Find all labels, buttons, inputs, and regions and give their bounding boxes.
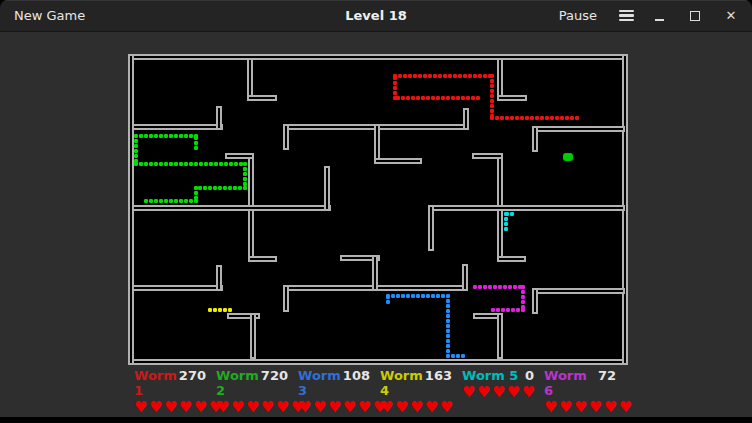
worm-1-segment [393,86,397,90]
maze-wall [497,256,526,262]
worm-1-segment [545,116,549,120]
worm-3-segment [401,294,405,298]
player-score: 720 [261,368,288,398]
worm-2-segment [214,162,218,166]
worm-3-segment [446,329,450,333]
player-score: 163 [425,368,452,398]
worm-3-segment [446,309,450,313]
worm-2-segment [144,199,148,203]
worm-1-segment [525,116,529,120]
player-name: Worm 3 [298,368,343,398]
maze-wall [463,108,469,130]
worm-2-segment [154,134,158,138]
maze-wall [372,255,378,291]
maze-wall [324,166,330,211]
worm-2-segment [229,162,233,166]
maze-wall [250,313,256,359]
worm-6-segment [498,285,502,289]
worm-3-segment [451,354,455,358]
maze-wall [428,205,434,251]
worm-2-segment [238,186,242,190]
worm-2-segment [179,199,183,203]
worm-1-segment [461,96,465,100]
worm-1-segment [453,74,457,78]
worm-2-segment [209,162,213,166]
worm-5-segment [504,212,508,216]
maze-wall [374,158,422,164]
minimize-button[interactable] [648,5,670,27]
worm-2-segment [219,162,223,166]
worm-2-segment [194,146,198,150]
worm-3-segment [446,324,450,328]
worm-1-segment [466,96,470,100]
worm-2-segment [194,134,198,138]
maze-wall [132,124,223,130]
worm-2-segment [134,149,138,153]
worm-5-segment [504,227,508,231]
worm-1-segment [413,74,417,78]
worm-1-segment [535,116,539,120]
worm-2-segment [234,162,238,166]
worm-1-segment [468,74,472,78]
worm-2-segment [134,162,138,166]
worm-1-segment [540,116,544,120]
worm-1-segment [431,96,435,100]
maximize-button[interactable] [684,5,706,27]
worm-1-segment [401,96,405,100]
worm-6-segment [521,308,525,312]
worm-1-segment [490,116,494,120]
maze-wall [428,205,625,211]
worm-3-segment [446,299,450,303]
worm-1-segment [398,74,402,78]
worm-1-segment [393,91,397,95]
worm-6-segment [511,308,515,312]
worm-2-segment [194,191,198,195]
worm-6-segment [521,290,525,294]
worm-1-segment [490,79,494,83]
worm-1-segment [448,74,452,78]
worm-2-segment [194,141,198,145]
worm-1-segment [438,74,442,78]
worm-1-segment [490,84,494,88]
worm-6-segment [501,308,505,312]
worm-1-segment [530,116,534,120]
worm-1-segment [403,74,407,78]
worm-1-segment [418,74,422,78]
worm-1-segment [393,74,397,78]
worm-1-segment [428,74,432,78]
worm-6-segment [473,285,477,289]
maze-wall [216,106,222,130]
worm-1-segment [490,109,494,113]
player-score: 270 [179,368,206,398]
worm-1-segment [406,96,410,100]
worm-3-segment [386,300,390,304]
worm-2-segment [233,186,237,190]
worm-3-segment [386,294,390,298]
worm-1-segment [560,116,564,120]
worm-2-segment [198,186,202,190]
worm-1-segment [433,74,437,78]
player-lives-hearts: ♥♥♥♥♥♥ [216,399,298,416]
worm-4-segment [213,308,217,312]
worm-2-segment [134,144,138,148]
maze-wall [472,153,503,159]
worm-3-segment [426,294,430,298]
worm-2-segment [194,162,198,166]
worm-5-segment [504,217,508,221]
worm-3-segment [416,294,420,298]
player-lives-hearts: ♥♥♥♥♥♥ [298,399,380,416]
menu-icon[interactable] [619,10,634,21]
worm-2-segment [154,199,158,203]
player-score-panel: Worm 3108♥♥♥♥♥♥ [298,368,380,416]
worm-2-segment [174,199,178,203]
board-border-wall [128,359,628,365]
worm-3-segment [446,319,450,323]
player-score-panel: Worm 672♥♥♥♥♥♥ [544,368,626,416]
worm-3-segment [441,294,445,298]
worm-2-segment [159,162,163,166]
worm-1-segment [471,96,475,100]
worm-1-segment [411,96,415,100]
worm-3-segment [446,349,450,353]
player-score: 72 [598,368,616,398]
window-content: Worm 1270♥♥♥♥♥♥Worm 2720♥♥♥♥♥♥Worm 3108♥… [0,32,752,417]
player-score-panel: Worm 2720♥♥♥♥♥♥ [216,368,298,416]
worm-2-segment [223,186,227,190]
worm-2-segment [134,134,138,138]
worm-3-segment [446,354,450,358]
worm-3-segment [391,294,395,298]
worm-5-segment [504,222,508,226]
worm-2-segment [149,199,153,203]
worm-3-segment [436,294,440,298]
worm-6-segment [491,308,495,312]
worm-1-segment [505,116,509,120]
worm-1-segment [520,116,524,120]
worm-1-segment [473,74,477,78]
worm-2-segment [243,177,247,181]
worm-2-segment [139,134,143,138]
worm-2-segment [164,162,168,166]
worm-2-segment [174,134,178,138]
worm-6-segment [506,308,510,312]
player-lives-hearts: ♥♥♥♥♥ [462,384,544,401]
worm-6-segment [503,285,507,289]
worm-6-segment [521,295,525,299]
worm-4-segment [218,308,222,312]
worm-2-segment [179,162,183,166]
worm-2-segment [189,162,193,166]
player-score: 108 [343,368,370,398]
worm-2-segment [169,134,173,138]
worm-1-segment [500,116,504,120]
maze-wall [532,126,625,132]
worm-6-segment [508,285,512,289]
maze-wall [248,256,277,262]
worm-1-segment [441,96,445,100]
worm-3-segment [446,294,450,298]
worm-1-segment [565,116,569,120]
maze-wall [532,288,625,294]
player-name: Worm 1 [134,368,179,398]
player-name: Worm 4 [380,368,425,398]
player-name: Worm 2 [216,368,261,398]
worm-3-segment [446,339,450,343]
worm-1-segment [490,99,494,103]
worm-6-segment [521,300,525,304]
app-window: New Game Level 18 Pause ✕ Worm 1270♥♥♥♥♥… [0,0,752,417]
worm-1-segment [555,116,559,120]
worm-6-segment [496,308,500,312]
worm-2-segment [169,199,173,203]
worm-3-segment [406,294,410,298]
player-name: Worm 6 [544,368,598,398]
worm-3-segment [446,334,450,338]
worm-1-segment [416,96,420,100]
worm-1-segment [550,116,554,120]
worm-2-segment [243,186,247,190]
worm-5-segment [510,212,514,216]
worm-2-segment [159,134,163,138]
worm-1-segment [426,96,430,100]
worm-1-segment [478,74,482,78]
worm-2-segment [243,167,247,171]
worm-2-segment [144,162,148,166]
worm-1-segment [570,116,574,120]
maze-wall [497,313,503,359]
player-score-panel: Worm 50♥♥♥♥♥ [462,368,544,416]
worm-1-segment [483,74,487,78]
worm-6-segment [513,285,517,289]
maze-wall [247,95,277,101]
worm-2-segment [134,139,138,143]
worm-1-segment [495,116,499,120]
player-lives-hearts: ♥♥♥♥♥♥ [544,399,626,416]
worm-2-segment [184,199,188,203]
worm-3-segment [431,294,435,298]
close-button[interactable]: ✕ [720,5,742,27]
worm-2-segment [179,134,183,138]
game-board [128,54,628,365]
worm-1-segment [421,96,425,100]
maze-wall [225,153,254,159]
worm-2-segment [169,162,173,166]
worm-1-segment [443,74,447,78]
worm-2-segment [199,162,203,166]
maze-wall [216,265,222,291]
worm-1-segment [490,74,494,78]
worm-1-segment [458,74,462,78]
worm-1-segment [490,89,494,93]
worm-2-segment [213,186,217,190]
worm-2-segment [203,186,207,190]
player-score-panel: Worm 4163♥♥♥♥♥ [380,368,462,416]
worm-6-segment [478,285,482,289]
worm-6-segment [483,285,487,289]
pause-button[interactable]: Pause [559,8,597,23]
worm-2-segment [194,186,198,190]
new-game-button[interactable]: New Game [14,8,85,23]
scoreboard: Worm 1270♥♥♥♥♥♥Worm 2720♥♥♥♥♥♥Worm 3108♥… [134,368,626,416]
maze-wall [132,285,223,291]
worm-3-segment [446,344,450,348]
worm-1-segment [510,116,514,120]
maze-wall [283,124,289,150]
worm-1-segment [490,94,494,98]
worm-3-segment [446,304,450,308]
worm-1-segment [456,96,460,100]
worm-2-segment [174,162,178,166]
maze-wall [497,95,527,101]
player-name: Worm 5 [462,368,518,383]
worm-2-segment [189,199,193,203]
worm-2-segment [189,134,193,138]
worm-6-segment [516,308,520,312]
worm-1-segment [446,96,450,100]
worm-3-segment [396,294,400,298]
player-score: 0 [525,368,534,383]
worm-4-segment [223,308,227,312]
worm-1-segment [463,74,467,78]
worm-2-segment [134,154,138,158]
worm-1-segment [393,96,397,100]
worm-2-segment [184,162,188,166]
maximize-icon [690,11,700,21]
worm-2-segment [159,199,163,203]
worm-2-segment [243,172,247,176]
worm-2-segment [144,134,148,138]
worm-2-segment [149,162,153,166]
close-icon: ✕ [726,9,737,22]
worm-6-segment [521,285,525,289]
player-lives-hearts: ♥♥♥♥♥♥ [134,399,216,416]
worm-1-segment [436,96,440,100]
worm-2-segment [139,162,143,166]
worm-2-segment [149,134,153,138]
worm-4-segment [228,308,232,312]
worm-3-segment [421,294,425,298]
maze-wall [132,205,331,211]
worm-3-segment [411,294,415,298]
worm-1-segment [393,81,397,85]
worm-3-segment [456,354,460,358]
worm-2-segment [164,134,168,138]
worm-2-segment [218,186,222,190]
player-lives-hearts: ♥♥♥♥♥ [380,399,462,416]
worm-2-segment [204,162,208,166]
board-border-wall [128,54,628,60]
worm-2-segment [224,162,228,166]
worm-1-segment [476,96,480,100]
worm-2-segment [194,199,198,203]
minimize-icon [655,19,664,21]
worm-6-segment [493,285,497,289]
worm-1-segment [408,74,412,78]
maze-wall [532,126,538,152]
worm-4-segment [208,308,212,312]
titlebar: New Game Level 18 Pause ✕ [0,0,752,32]
worm-1-segment [490,104,494,108]
worm-1-segment [575,116,579,120]
worm-2-segment [154,162,158,166]
worm-1-segment [423,74,427,78]
maze-wall [532,288,538,314]
worm-1-segment [515,116,519,120]
food-bonus [563,153,573,161]
player-score-panel: Worm 1270♥♥♥♥♥♥ [134,368,216,416]
worm-2-segment [243,162,247,166]
worm-2-segment [228,186,232,190]
worm-6-segment [488,285,492,289]
maze-wall [462,264,468,291]
worm-3-segment [461,354,465,358]
worm-2-segment [184,134,188,138]
worm-3-segment [446,314,450,318]
worm-2-segment [208,186,212,190]
worm-1-segment [451,96,455,100]
maze-wall [283,285,289,312]
worm-2-segment [164,199,168,203]
